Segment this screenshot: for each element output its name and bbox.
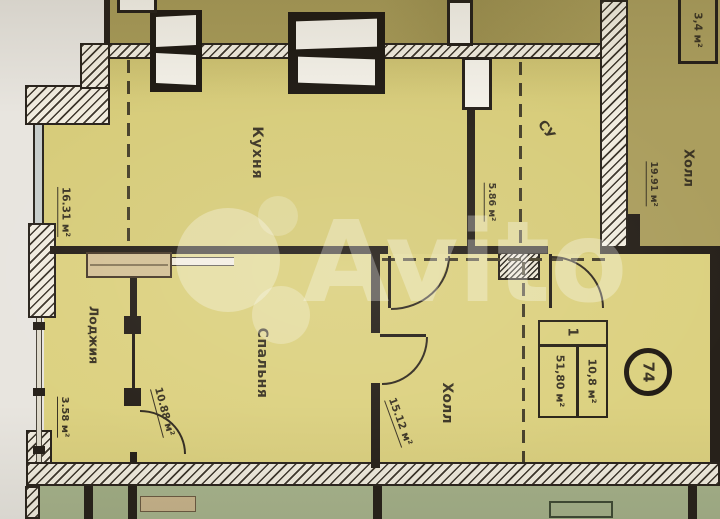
vent-box-3-upper — [447, 0, 473, 46]
room-below-green-4 — [697, 486, 720, 519]
wall-bedroom-hall-upper — [371, 254, 380, 333]
vent-box-2-upper — [296, 19, 377, 50]
wall-corridor-vertical — [600, 0, 628, 254]
vent-box-1 — [150, 10, 202, 92]
shaft-area-label: 3,4 м² — [692, 12, 703, 47]
wall-green-3 — [373, 486, 382, 519]
loggia-glazing-post-2 — [33, 388, 45, 396]
hall-name-label: Холл — [440, 383, 454, 424]
kitchen-area-label: 16.31 м² — [58, 187, 71, 237]
top-left-cut-box — [117, 0, 157, 13]
vent-box-1-upper — [156, 15, 196, 47]
door-leaf-entrance — [549, 254, 552, 308]
wall-corridor-stub — [628, 214, 640, 254]
wall-bottomleft-stub — [25, 486, 40, 519]
dashed-line-bathroom — [519, 62, 522, 244]
bathroom-area-label: 5.86 м² — [484, 183, 496, 222]
dashed-line-hall-vertical — [522, 262, 525, 462]
room-below-green-3 — [382, 486, 688, 519]
room-below-green-0 — [40, 486, 84, 519]
kitchen-window — [33, 125, 44, 223]
wall-topleft-stub — [80, 43, 110, 89]
loggia-area-label: 3.58 м² — [57, 397, 69, 438]
wall-green-4 — [688, 486, 697, 519]
stamp-divider-h — [540, 344, 606, 347]
door-leaf-bedroom — [380, 334, 426, 337]
loggia-glazing-post-3 — [33, 446, 45, 454]
wall-right-edge — [710, 254, 720, 462]
vent-box-2 — [288, 12, 385, 94]
below-outlined-box — [549, 501, 613, 518]
floor-plan: Кухня 16.31 м² СУ 5.86 м² Холл 19.91 м² … — [0, 0, 720, 519]
vent-box-1-lower — [156, 53, 196, 85]
wall-bedroom-hall-lower — [371, 383, 380, 468]
stamp-rooms-count: 1 — [566, 327, 579, 336]
building-hall-area-label: 19.91 м² — [646, 161, 658, 206]
vent-shaft-hall — [498, 252, 540, 280]
wall-mid-horizontal-3 — [602, 246, 720, 254]
stamp-living-area: 10,8 м² — [587, 359, 598, 404]
watermark-circle-3 — [258, 196, 298, 236]
building-hall-name-label: Холл — [682, 149, 695, 187]
wall-loggia-bedroom-2 — [130, 452, 137, 464]
wall-topleft-block — [25, 85, 110, 125]
vent-box-2-lower — [298, 57, 375, 86]
wall-loggia-post-1 — [124, 316, 141, 334]
room-below-green-1 — [93, 486, 128, 519]
below-furniture — [140, 496, 196, 512]
stamp-total-area: 51,80 м² — [555, 355, 566, 407]
vent-box-3-lower — [462, 57, 492, 110]
balcony-window-sill-midline — [90, 264, 168, 266]
apartment-number-label: 74 — [641, 362, 656, 383]
kitchen-name-label: Кухня — [250, 126, 264, 179]
loggia-glazing-post-1 — [33, 322, 45, 330]
stamp-divider-v — [576, 346, 579, 416]
wall-loggia-post-2 — [124, 388, 141, 406]
wall-green-2 — [128, 486, 137, 519]
loggia-name-label: Лоджия — [87, 306, 100, 364]
door-leaf-kitchen-hall — [388, 256, 391, 308]
wall-upper-left-edge — [104, 0, 110, 45]
watermark-circle-2 — [252, 286, 310, 344]
wall-left-mid-block — [28, 223, 56, 318]
wall-loggia-thin — [132, 334, 135, 388]
dashed-line-kitchen — [127, 60, 130, 246]
wall-green-1 — [84, 486, 93, 519]
